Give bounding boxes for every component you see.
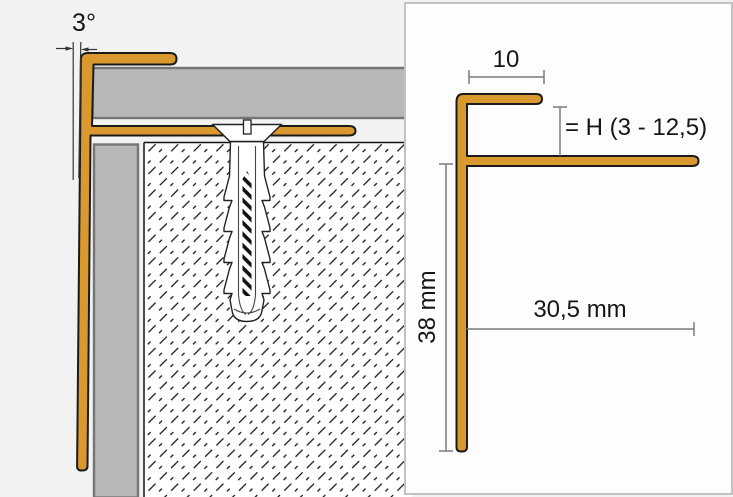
- profile-outline: [457, 94, 699, 452]
- profile-drawing: [406, 4, 731, 493]
- screw-thread: [243, 171, 252, 296]
- dim-tile-height-label: = H (3 - 12,5): [565, 114, 707, 142]
- dim-top-width-label: 10: [482, 46, 530, 74]
- riser-tile: [94, 145, 138, 497]
- angle-label: 3°: [62, 9, 106, 38]
- dim-leg-height-label: 38 mm: [414, 262, 442, 352]
- tread-tile: [93, 68, 407, 118]
- technical-drawing: 3°: [0, 0, 733, 497]
- profile-dimension-panel: 10 = H (3 - 12,5) 38 mm 30,5 mm: [404, 2, 733, 495]
- dim-base-length-label: 30,5 mm: [530, 296, 630, 324]
- dim-base-length-line: [467, 322, 695, 336]
- substrate-hatch: [144, 143, 412, 497]
- screw: [213, 120, 282, 142]
- installation-diagram: [0, 0, 412, 497]
